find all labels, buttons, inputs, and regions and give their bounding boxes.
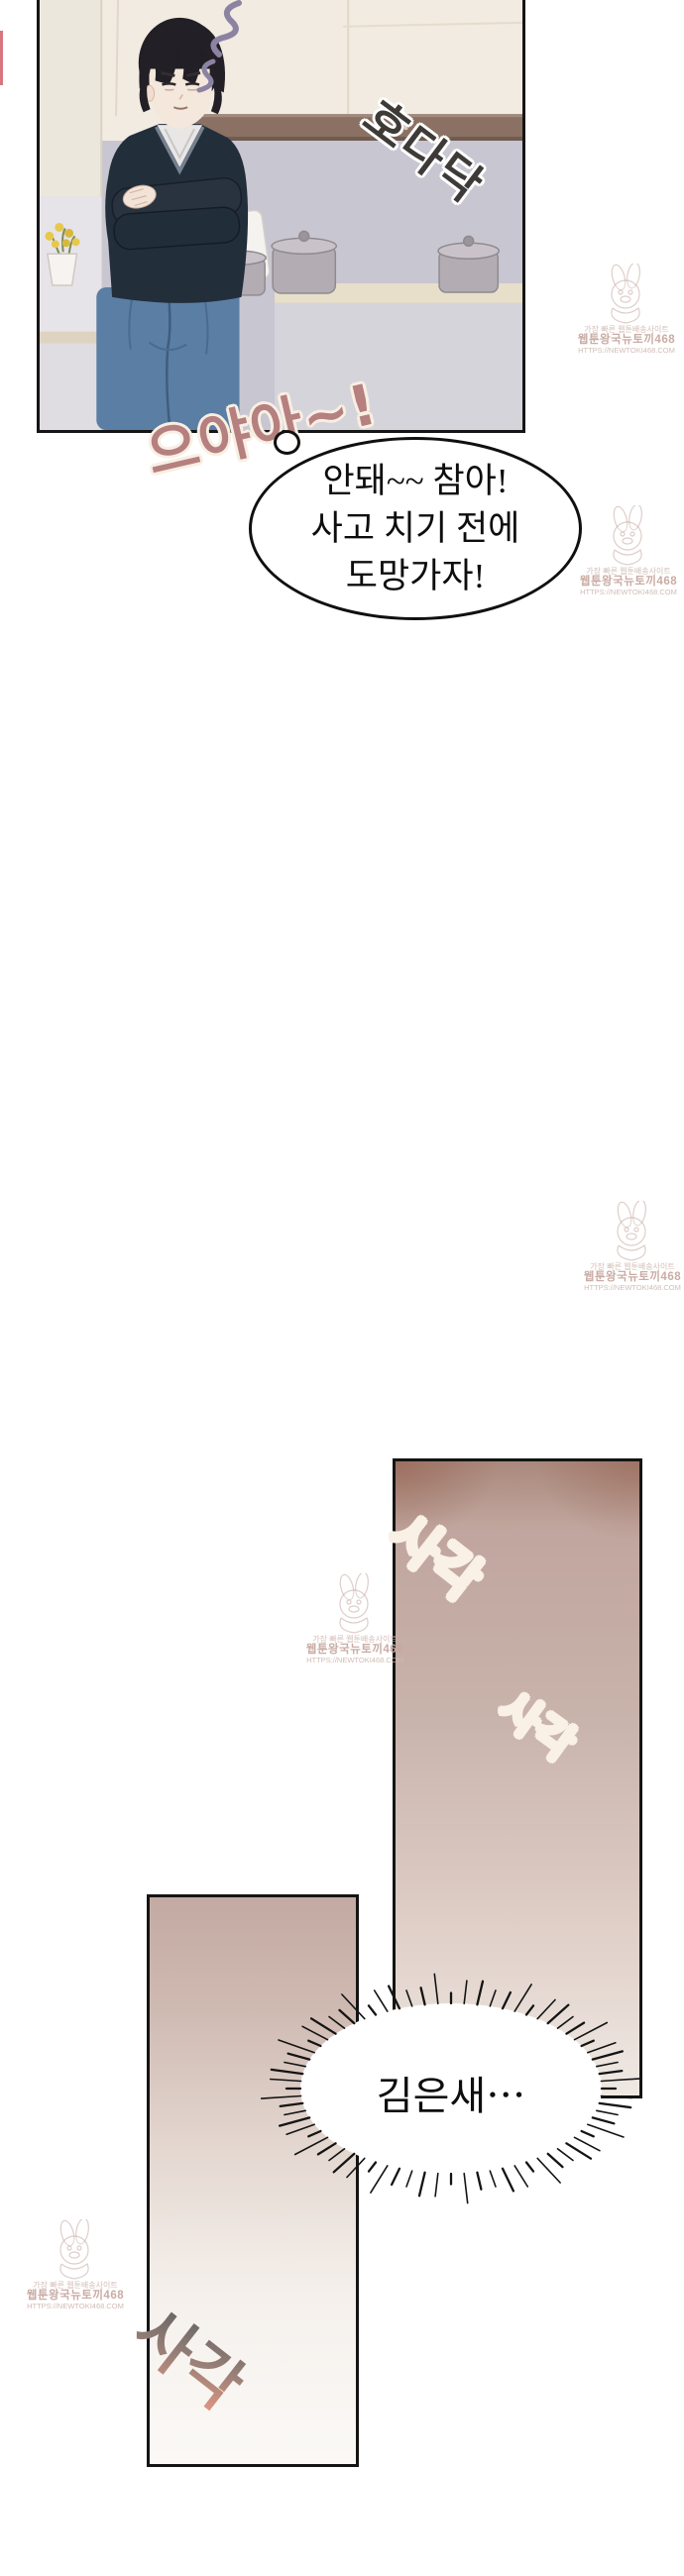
watermark-newtoki: 가장 빠른 웹툰배송사이트 웹툰왕국뉴토끼468 HTTPS://NEWTOKI… <box>20 2219 131 2311</box>
watermark-line-3: HTTPS://NEWTOKI468.COM <box>20 2303 131 2311</box>
watermark-line-1: 가장 빠른 웹툰배송사이트 <box>573 567 684 576</box>
newtoki-rabbit-icon <box>326 1573 384 1635</box>
speech-line: 안돼~~ 참아! <box>322 458 508 505</box>
annoyance-squiggle-icon <box>181 0 261 107</box>
speech-bubble: 안돼~~ 참아! 사고 치기 전에 도망가자! <box>249 437 582 620</box>
watermark-newtoki: 가장 빠른 웹툰배송사이트 웹툰왕국뉴토끼468 HTTPS://NEWTOKI… <box>571 264 682 356</box>
speech-bubble-bump <box>274 430 300 455</box>
webtoon-page: { "page": {"width": 690, "height": 2600,… <box>0 0 684 2576</box>
watermark-newtoki: 가장 빠른 웹툰배송사이트 웹툰왕국뉴토끼468 HTTPS://NEWTOKI… <box>299 1573 410 1665</box>
speech-line: 도망가자! <box>346 553 485 600</box>
watermark-line-3: HTTPS://NEWTOKI468.COM <box>577 1284 684 1293</box>
kitchen-panel <box>37 0 525 433</box>
watermark-line-3: HTTPS://NEWTOKI468.COM <box>573 589 684 597</box>
newtoki-rabbit-icon <box>600 505 657 567</box>
watermark-line-1: 가장 빠른 웹툰배송사이트 <box>571 325 682 334</box>
newtoki-rabbit-icon <box>598 264 655 325</box>
watermark-line-1: 가장 빠른 웹툰배송사이트 <box>20 2281 131 2290</box>
newtoki-rabbit-icon <box>604 1201 661 1262</box>
speech-line: 사고 치기 전에 <box>311 505 520 553</box>
newtoki-rabbit-icon <box>47 2219 104 2281</box>
watermark-newtoki: 가장 빠른 웹툰배송사이트 웹툰왕국뉴토끼468 HTTPS://NEWTOKI… <box>577 1201 684 1293</box>
watermark-line-1: 가장 빠른 웹툰배송사이트 <box>299 1635 410 1644</box>
kitchen-scene-illustration <box>40 0 522 430</box>
watermark-line-1: 가장 빠른 웹툰배송사이트 <box>577 1262 684 1271</box>
watermark-newtoki: 가장 빠른 웹툰배송사이트 웹툰왕국뉴토끼468 HTTPS://NEWTOKI… <box>573 505 684 597</box>
watermark-line-3: HTTPS://NEWTOKI468.COM <box>299 1657 410 1665</box>
red-edge-artifact <box>0 31 3 85</box>
burst-text: 김은새⋯ <box>327 2064 575 2121</box>
watermark-line-3: HTTPS://NEWTOKI468.COM <box>571 347 682 356</box>
